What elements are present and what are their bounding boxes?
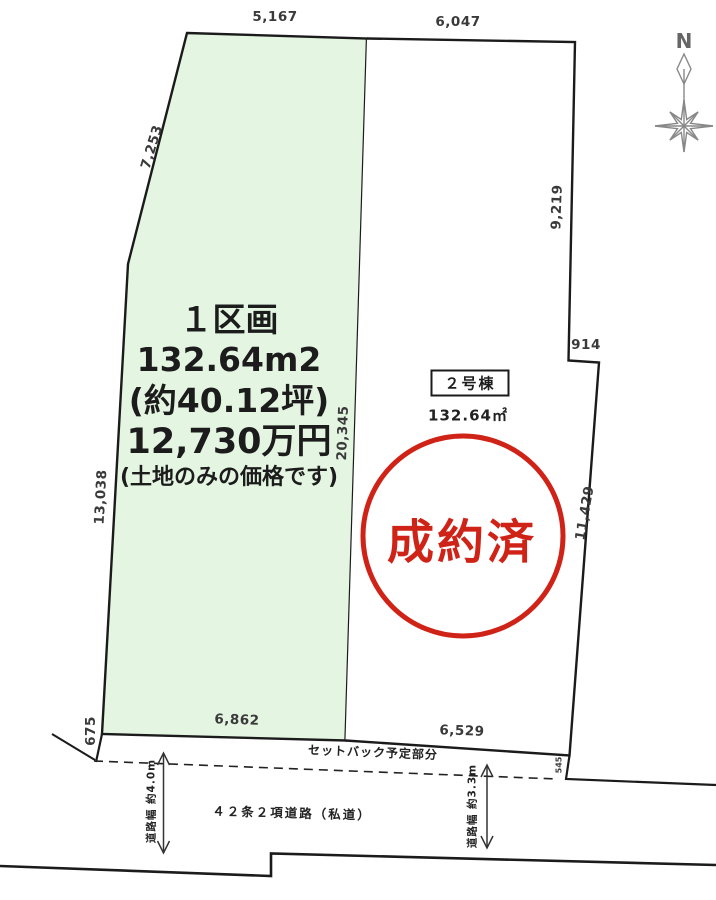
parcel2-outline xyxy=(346,39,600,756)
compass-rose xyxy=(655,54,713,152)
parcel1-area-m2: 132.64m2 xyxy=(95,340,363,380)
dimension-right-setback: 545 xyxy=(555,757,564,774)
dimension-right-upper: 9,219 xyxy=(548,184,566,230)
road-width-left-label: 道路幅 約4.0m xyxy=(144,759,159,843)
dimension-top-left: 5,167 xyxy=(252,9,297,25)
right-road-width-arrow xyxy=(481,765,493,848)
dimension-right-step: 914 xyxy=(571,337,601,353)
left-road-width-arrow xyxy=(158,753,170,853)
site-plan: 5,167 6,047 7,253 9,219 914 20,345 13,03… xyxy=(0,0,716,900)
parcel1-title: １区画 xyxy=(95,300,363,340)
parcel1-price: 12,730万円 xyxy=(95,421,363,464)
parcel2-area: 132.64㎡ xyxy=(428,405,508,426)
road-width-right-label: 道路幅 約3.3m xyxy=(465,764,480,848)
parcel2-building-label: ２号棟 xyxy=(430,370,509,397)
dimension-bottom-right: 6,529 xyxy=(439,722,485,740)
road-bottom-edge xyxy=(0,854,716,877)
sold-stamp-text: 成約済 xyxy=(387,504,537,573)
dimension-top-right: 6,047 xyxy=(435,14,480,30)
compass-north-label: N xyxy=(676,29,693,53)
parcel1-price-note: (土地のみの価格です) xyxy=(95,465,363,492)
parcel1-info: １区画 132.64m2 (約40.12坪) 12,730万円 (土地のみの価格… xyxy=(95,300,363,492)
dimension-left-setback: 675 xyxy=(83,716,99,746)
right-lower-boundary xyxy=(566,756,716,786)
dimension-bottom-left: 6,862 xyxy=(214,711,260,729)
parcel1-area-tsubo: (約40.12坪) xyxy=(95,381,363,421)
